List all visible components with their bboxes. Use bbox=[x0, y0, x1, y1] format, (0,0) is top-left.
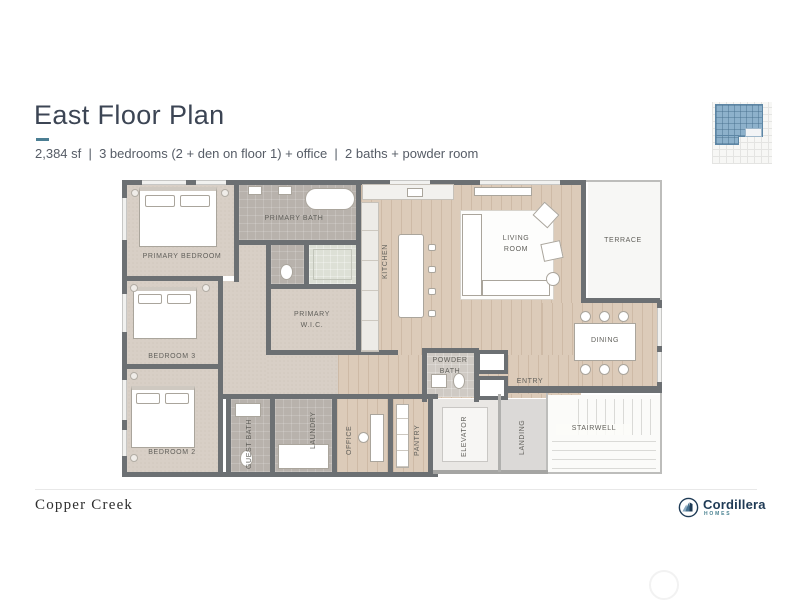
hall-floor-2 bbox=[266, 355, 338, 394]
stool bbox=[428, 244, 436, 251]
wall bbox=[226, 394, 231, 477]
stool bbox=[428, 266, 436, 273]
wall bbox=[266, 240, 271, 355]
wall bbox=[422, 348, 479, 353]
speaker-icon bbox=[202, 284, 210, 292]
desk-chair bbox=[358, 432, 369, 443]
wall bbox=[422, 348, 427, 402]
common-wall bbox=[433, 470, 548, 474]
wall bbox=[234, 240, 360, 245]
wall bbox=[332, 394, 337, 477]
pillow bbox=[136, 393, 160, 404]
bathtub bbox=[305, 188, 355, 210]
dining-chair bbox=[580, 311, 591, 322]
pillow bbox=[138, 294, 162, 304]
wall bbox=[581, 180, 586, 302]
wall bbox=[428, 394, 433, 477]
sofa bbox=[462, 214, 482, 296]
speaker-icon bbox=[130, 284, 138, 292]
room-label-elevator: ELEVATOR bbox=[459, 406, 471, 468]
laundry-counter bbox=[278, 444, 329, 469]
pillow bbox=[165, 393, 189, 404]
key-plan-highlight-unit-lower bbox=[715, 135, 739, 145]
wall bbox=[218, 394, 438, 399]
pillow bbox=[180, 195, 210, 207]
building-key-plan bbox=[712, 102, 772, 164]
pillow bbox=[167, 294, 191, 304]
room-label-entry: ENTRY bbox=[508, 377, 552, 388]
room-label-guest-bath: GUEST BATH bbox=[244, 416, 256, 472]
sink bbox=[278, 186, 292, 195]
brand-tagline: HOMES bbox=[704, 511, 731, 517]
kitchen-counter bbox=[362, 184, 454, 200]
shower-pan bbox=[313, 249, 352, 280]
plan-specs: 2,384 sf | 3 bedrooms (2 + den on floor … bbox=[35, 146, 478, 161]
speaker-icon bbox=[130, 372, 138, 380]
key-plan-notch bbox=[745, 128, 762, 137]
page-title: East Floor Plan bbox=[34, 100, 225, 131]
entry-closet bbox=[476, 376, 508, 400]
pillow bbox=[145, 195, 175, 207]
kitchen-sink bbox=[407, 188, 423, 197]
wall bbox=[122, 364, 222, 369]
window bbox=[657, 308, 662, 346]
landing-wall bbox=[498, 394, 501, 472]
dining-chair bbox=[599, 311, 610, 322]
window bbox=[122, 198, 127, 240]
side-table bbox=[546, 272, 560, 286]
toilet bbox=[280, 264, 293, 280]
room-label-powder-bath: POWDER BATH bbox=[428, 356, 472, 377]
room-label-terrace: TERRACE bbox=[588, 236, 658, 247]
hall-floor bbox=[223, 281, 266, 394]
terrace-wall bbox=[660, 180, 662, 300]
watermark-circle bbox=[649, 570, 679, 600]
kitchen-counter bbox=[361, 202, 379, 352]
room-label-laundry: LAUNDRY bbox=[308, 404, 320, 456]
wall bbox=[581, 298, 662, 303]
room-label-bedroom-2: BEDROOM 2 bbox=[132, 448, 212, 459]
sink bbox=[248, 186, 262, 195]
wall bbox=[304, 244, 309, 289]
window bbox=[480, 180, 560, 185]
room-label-pantry: PANTRY bbox=[412, 414, 424, 466]
wall bbox=[122, 276, 222, 281]
flyer-page: East Floor Plan 2,384 sf | 3 bedrooms (2… bbox=[0, 0, 792, 612]
room-label-living-room: LIVING ROOM bbox=[494, 234, 538, 255]
wall bbox=[266, 350, 361, 355]
room-label-kitchen: KITCHEN bbox=[380, 230, 392, 294]
footer-divider bbox=[35, 489, 757, 490]
room-label-primary-wic: PRIMARY W.I.C. bbox=[284, 310, 340, 331]
desk bbox=[370, 414, 384, 462]
wall bbox=[218, 276, 223, 477]
title-accent-dash bbox=[36, 138, 49, 141]
stairwell-wall bbox=[660, 393, 662, 474]
room-label-dining: DINING bbox=[574, 336, 636, 347]
wall bbox=[234, 180, 239, 282]
room-label-office: OFFICE bbox=[344, 414, 356, 466]
bed bbox=[131, 386, 195, 448]
dining-chair bbox=[599, 364, 610, 375]
dining-chair bbox=[580, 364, 591, 375]
window bbox=[657, 352, 662, 382]
sink bbox=[235, 403, 261, 417]
bed bbox=[139, 187, 217, 247]
brand-name: Cordillera bbox=[703, 497, 766, 512]
window bbox=[142, 180, 186, 185]
entry-closet bbox=[476, 350, 508, 374]
stair-treads bbox=[552, 439, 656, 469]
room-label-primary-bath: PRIMARY BATH bbox=[264, 214, 324, 225]
bed bbox=[133, 287, 197, 339]
speaker-icon bbox=[131, 189, 139, 197]
terrace-wall bbox=[586, 180, 662, 182]
window bbox=[196, 180, 226, 185]
window bbox=[122, 294, 127, 332]
speaker-icon bbox=[221, 189, 229, 197]
room-label-landing: LANDING bbox=[517, 406, 529, 468]
cordillera-logo-icon bbox=[678, 497, 699, 518]
dining-chair bbox=[618, 311, 629, 322]
room-label-bedroom-3: BEDROOM 3 bbox=[132, 352, 212, 363]
stool bbox=[428, 288, 436, 295]
window bbox=[122, 380, 127, 420]
community-name: Copper Creek bbox=[35, 497, 133, 514]
kitchen-island bbox=[398, 234, 424, 318]
window bbox=[122, 430, 127, 456]
tv-console bbox=[474, 187, 532, 196]
floor-plan: PRIMARY BEDROOM PRIMARY BATH PRIMARY W.I… bbox=[122, 180, 682, 487]
stairwell-wall bbox=[546, 393, 548, 474]
dining-chair bbox=[618, 364, 629, 375]
sofa bbox=[482, 280, 550, 296]
wall bbox=[388, 394, 393, 477]
stairwell-wall bbox=[546, 472, 662, 474]
room-label-stairwell: STAIRWELL bbox=[556, 424, 632, 435]
room-label-primary-bedroom: PRIMARY BEDROOM bbox=[140, 252, 224, 263]
wall bbox=[266, 284, 361, 289]
pantry-shelves bbox=[396, 404, 409, 468]
wall bbox=[270, 394, 275, 477]
stool bbox=[428, 310, 436, 317]
